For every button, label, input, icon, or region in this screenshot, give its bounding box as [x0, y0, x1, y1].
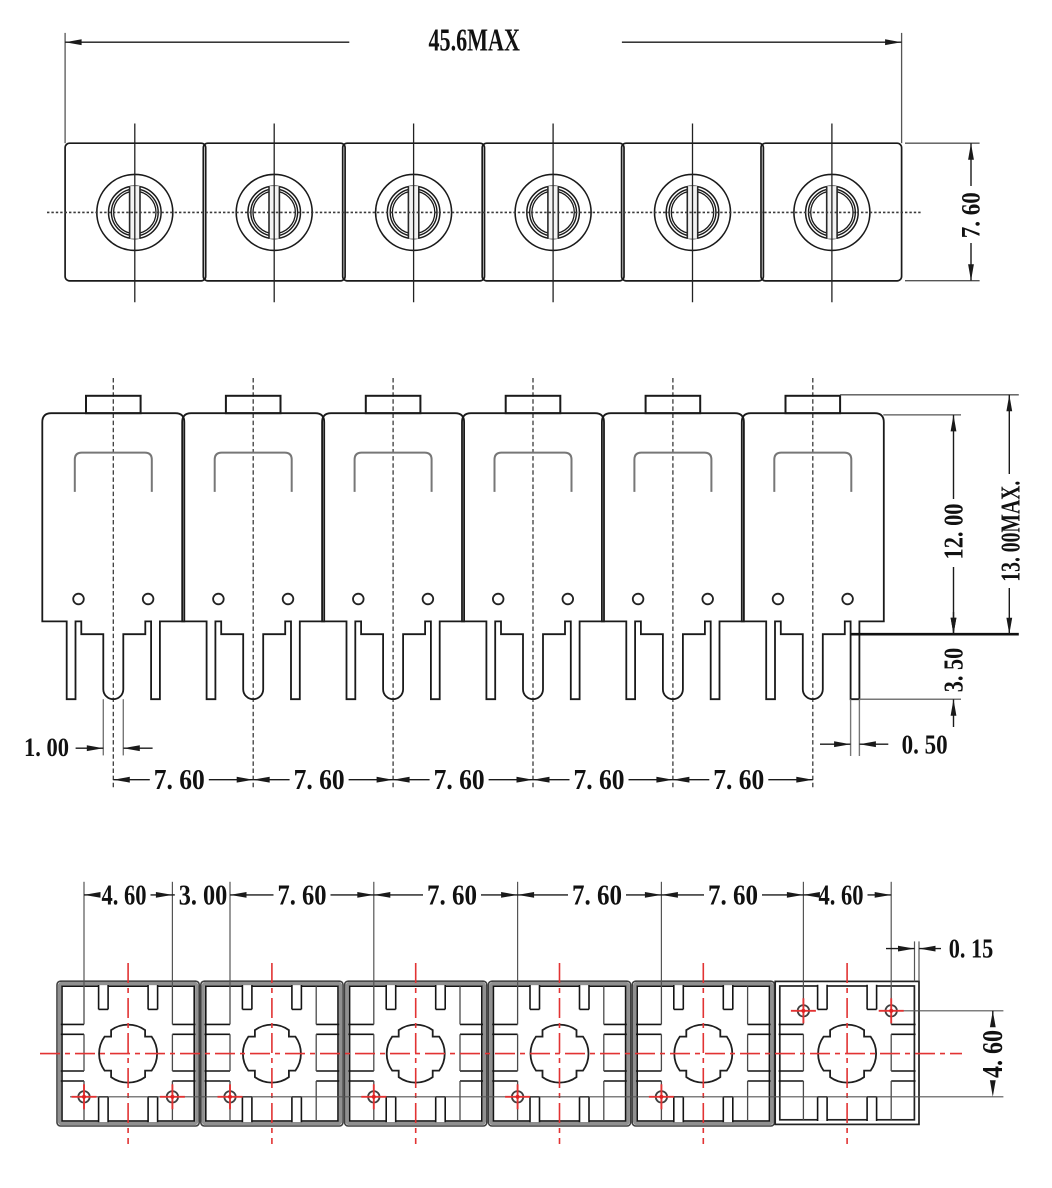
svg-text:7. 60: 7. 60 [427, 880, 477, 912]
svg-text:3. 50: 3. 50 [938, 648, 968, 693]
svg-text:7. 60: 7. 60 [708, 880, 758, 912]
svg-text:7. 60: 7. 60 [278, 880, 327, 912]
svg-text:7. 60: 7. 60 [154, 765, 205, 796]
svg-text:7. 60: 7. 60 [713, 765, 764, 796]
svg-text:4. 60: 4. 60 [819, 880, 864, 912]
svg-text:7. 60: 7. 60 [956, 192, 985, 238]
svg-text:1. 00: 1. 00 [24, 733, 69, 762]
svg-text:13. 00MAX.: 13. 00MAX. [995, 481, 1025, 582]
svg-text:0. 15: 0. 15 [949, 933, 994, 963]
svg-text:7. 60: 7. 60 [294, 765, 345, 796]
svg-text:45.6MAX: 45.6MAX [429, 22, 520, 58]
svg-text:4. 60: 4. 60 [978, 1030, 1009, 1078]
svg-text:0. 50: 0. 50 [902, 730, 948, 760]
svg-text:12. 00: 12. 00 [939, 504, 969, 560]
svg-text:7. 60: 7. 60 [434, 765, 485, 796]
svg-text:3. 00: 3. 00 [179, 880, 228, 912]
svg-text:7. 60: 7. 60 [574, 765, 625, 796]
svg-text:4. 60: 4. 60 [102, 880, 147, 912]
svg-text:7. 60: 7. 60 [572, 880, 622, 912]
